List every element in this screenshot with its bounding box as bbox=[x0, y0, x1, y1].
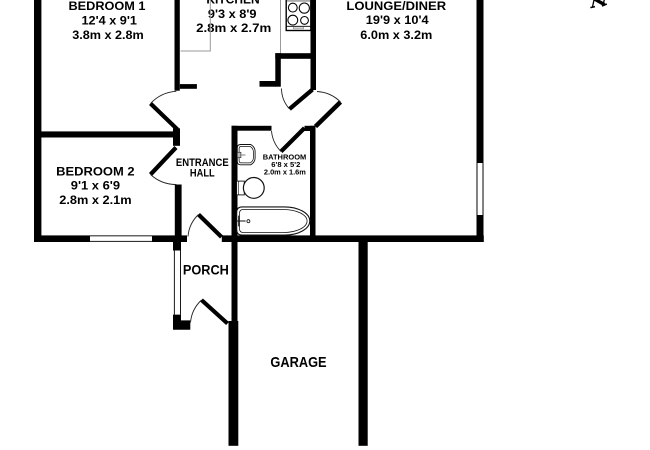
svg-text:2.8m x 2.1m: 2.8m x 2.1m bbox=[59, 193, 131, 207]
svg-text:BEDROOM 2: BEDROOM 2 bbox=[56, 164, 135, 178]
svg-text:HALL: HALL bbox=[190, 168, 215, 180]
svg-text:PORCH: PORCH bbox=[183, 263, 229, 278]
svg-text:KITCHEN: KITCHEN bbox=[206, 0, 259, 7]
svg-text:2.8m x 2.7m: 2.8m x 2.7m bbox=[196, 21, 271, 35]
svg-text:9'1 x 6'9: 9'1 x 6'9 bbox=[71, 179, 121, 193]
svg-text:6.0m x 3.2m: 6.0m x 3.2m bbox=[360, 28, 432, 42]
svg-text:19'9 x 10'4: 19'9 x 10'4 bbox=[366, 13, 429, 27]
svg-text:3.8m x 2.8m: 3.8m x 2.8m bbox=[72, 28, 144, 42]
svg-text:9'3 x 8'9: 9'3 x 8'9 bbox=[208, 7, 257, 21]
svg-text:LOUNGE/DINER: LOUNGE/DINER bbox=[346, 0, 446, 13]
svg-text:2.0m x 1.6m: 2.0m x 1.6m bbox=[264, 167, 306, 176]
svg-text:BEDROOM 1: BEDROOM 1 bbox=[69, 0, 146, 13]
svg-text:12'4 x 9'1: 12'4 x 9'1 bbox=[82, 14, 138, 28]
svg-text:GARAGE: GARAGE bbox=[270, 354, 326, 371]
